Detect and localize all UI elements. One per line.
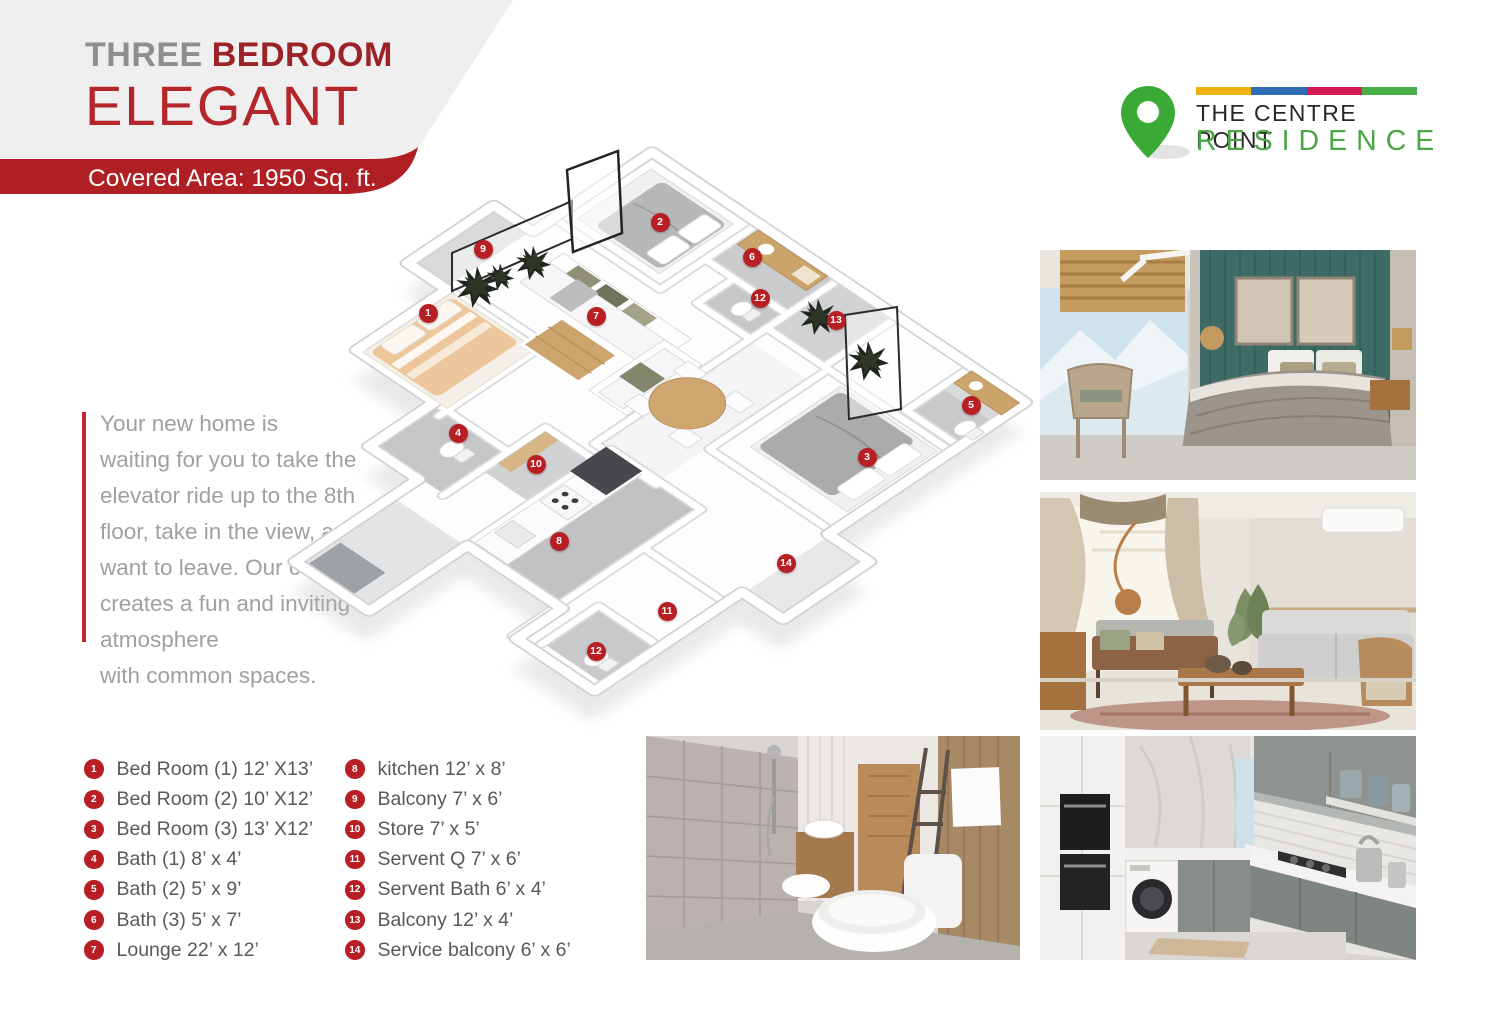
legend-label: Bath (2) 5’ x 9’ (117, 878, 242, 901)
plan-marker-6: 6 (743, 248, 762, 267)
kitchen-illustration (1040, 736, 1416, 960)
legend-label: Bed Room (3) 13’ X12’ (117, 818, 314, 841)
legend-number-badge: 9 (345, 790, 365, 810)
legend-item: 12Servent Bath 6’ x 4’ (345, 875, 571, 905)
legend-column-2: 8kitchen 12’ x 8’9Balcony 7’ x 6’10Store… (345, 754, 571, 965)
legend-number-badge: 7 (84, 940, 104, 960)
plan-marker-7: 7 (587, 307, 606, 326)
brand-color-bar (1196, 87, 1417, 95)
legend-number-badge: 12 (345, 880, 365, 900)
map-pin-icon (1118, 84, 1194, 164)
title-three: THREE (85, 36, 203, 74)
plan-marker-12: 12 (587, 642, 606, 661)
legend-label: Lounge 22’ x 12’ (117, 939, 259, 962)
tall-cabinets (1040, 736, 1125, 960)
plan-marker-1: 1 (419, 304, 438, 323)
legend-number-badge: 6 (84, 910, 104, 930)
legend-label: kitchen 12’ x 8’ (378, 758, 506, 781)
plan-marker-10: 10 (527, 455, 546, 474)
washing-machine (1126, 861, 1178, 933)
brand-logo: THE CENTRE POINT RESIDENCE (1118, 84, 1418, 164)
bar-blue (1251, 87, 1306, 95)
legend-number-badge: 13 (345, 910, 365, 930)
legend-item: 10Store 7’ x 5’ (345, 814, 571, 844)
plan-marker-3: 3 (858, 448, 877, 467)
legend-label: Servent Bath 6’ x 4’ (378, 878, 546, 901)
legend-number-badge: 4 (84, 850, 104, 870)
brand-subname: RESIDENCE (1196, 125, 1443, 158)
photo-bathroom (646, 736, 1020, 960)
legend-number-badge: 10 (345, 820, 365, 840)
bedroom-illustration (1040, 250, 1416, 480)
brochure-page: THREEBEDROOM ELEGANT Covered Area: 1950 … (0, 0, 1500, 1017)
legend-number-badge: 8 (345, 759, 365, 779)
legend-label: Service balcony 6’ x 6’ (378, 939, 571, 962)
legend-item: 14Service balcony 6’ x 6’ (345, 935, 571, 965)
title-line1: THREEBEDROOM (85, 38, 393, 72)
plan-marker-11: 11 (658, 602, 677, 621)
legend-item: 3Bed Room (3) 13’ X12’ (84, 814, 313, 844)
plan-marker-2: 2 (651, 213, 670, 232)
bar-crimson (1307, 87, 1362, 95)
legend-number-badge: 14 (345, 940, 365, 960)
legend-label: Store 7’ x 5’ (378, 818, 480, 841)
legend-column-1: 1Bed Room (1) 12’ X13’2Bed Room (2) 10’ … (84, 754, 313, 965)
plan-marker-14: 14 (777, 554, 796, 573)
legend-label: Bed Room (1) 12’ X13’ (117, 758, 314, 781)
legend-item: 8kitchen 12’ x 8’ (345, 754, 571, 784)
bar-yellow (1196, 87, 1251, 95)
legend-item: 4Bath (1) 8’ x 4’ (84, 845, 313, 875)
legend-item: 13Balcony 12’ x 4’ (345, 905, 571, 935)
plan-marker-4: 4 (449, 424, 468, 443)
photo-bedroom (1040, 250, 1416, 480)
legend-label: Bath (1) 8’ x 4’ (117, 848, 242, 871)
legend-number-badge: 3 (84, 820, 104, 840)
plan-marker-8: 8 (550, 532, 569, 551)
legend-item: 2Bed Room (2) 10’ X12’ (84, 784, 313, 814)
title-bedroom: BEDROOM (212, 36, 393, 74)
legend-number-badge: 2 (84, 790, 104, 810)
legend-label: Balcony 7’ x 6’ (378, 788, 503, 811)
living-room-illustration (1040, 492, 1416, 730)
legend-number-badge: 11 (345, 850, 365, 870)
intro-accent-rule (82, 412, 86, 642)
legend-item: 6Bath (3) 5’ x 7’ (84, 905, 313, 935)
plan-marker-12: 12 (751, 289, 770, 308)
bathroom-illustration (646, 736, 1020, 960)
legend-item: 5Bath (2) 5’ x 9’ (84, 875, 313, 905)
photo-living-room (1040, 492, 1416, 730)
legend-item: 7Lounge 22’ x 12’ (84, 935, 313, 965)
legend-label: Balcony 12’ x 4’ (378, 909, 514, 932)
bar-green (1362, 87, 1417, 95)
legend-item: 9Balcony 7’ x 6’ (345, 784, 571, 814)
legend-label: Bed Room (2) 10’ X12’ (117, 788, 314, 811)
legend-label: Bath (3) 5’ x 7’ (117, 909, 242, 932)
rattan-chair (1358, 637, 1412, 706)
photo-kitchen (1040, 736, 1416, 960)
legend-number-badge: 5 (84, 880, 104, 900)
plan-marker-13: 13 (827, 311, 846, 330)
legend-item: 11Servent Q 7’ x 6’ (345, 845, 571, 875)
legend-label: Servent Q 7’ x 6’ (378, 848, 521, 871)
legend-item: 1Bed Room (1) 12’ X13’ (84, 754, 313, 784)
plan-marker-9: 9 (474, 240, 493, 259)
legend-number-badge: 1 (84, 759, 104, 779)
plan-marker-5: 5 (962, 396, 981, 415)
